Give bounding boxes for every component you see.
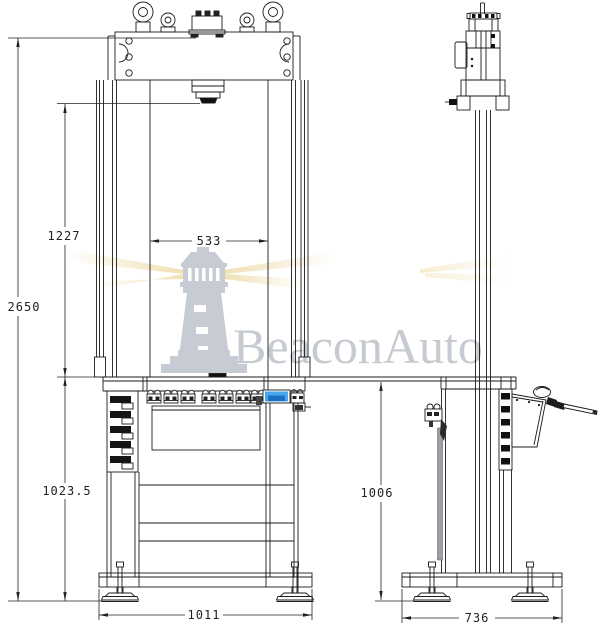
dimension-column-span: 533 bbox=[150, 234, 268, 248]
top-valve-block bbox=[189, 11, 225, 37]
leveling-foot bbox=[414, 562, 451, 602]
crosshead-beam bbox=[108, 32, 300, 80]
dimension-side-table-height: 1006 bbox=[361, 382, 414, 601]
dimension-base-width: 1011 bbox=[99, 589, 312, 622]
light-beams bbox=[66, 249, 508, 289]
pressure-display bbox=[256, 390, 311, 411]
drawing-canvas: BeaconAuto bbox=[0, 0, 606, 631]
dimension-clearance-height: 1227 bbox=[48, 104, 200, 378]
dimension-label: 1227 bbox=[48, 229, 81, 243]
front-base bbox=[99, 562, 314, 602]
dimension-label: 533 bbox=[197, 234, 222, 248]
dimension-label: 1023.5 bbox=[42, 484, 91, 498]
dimension-label: 2650 bbox=[8, 300, 41, 314]
dimension-label: 1006 bbox=[361, 486, 394, 500]
watermark: BeaconAuto bbox=[66, 247, 508, 374]
door-panel bbox=[152, 406, 260, 450]
hydraulic-ram bbox=[192, 80, 224, 103]
side-table-top bbox=[441, 377, 516, 389]
side-view bbox=[305, 3, 597, 602]
engineering-drawing: BeaconAuto bbox=[0, 0, 606, 631]
dimension-overall-height: 2650 bbox=[8, 38, 196, 601]
dimension-label: 736 bbox=[465, 611, 490, 625]
watermark-brand-text: BeaconAuto bbox=[233, 318, 483, 374]
side-bench bbox=[425, 389, 512, 573]
slot-cabinet bbox=[107, 391, 138, 472]
control-panel bbox=[512, 394, 546, 447]
side-base bbox=[402, 562, 562, 602]
dimension-table-height: 1023.5 bbox=[42, 377, 91, 601]
dimension-base-depth: 736 bbox=[402, 589, 562, 625]
valve-row bbox=[147, 390, 265, 403]
projection-lines bbox=[305, 377, 441, 381]
side-cylinder-assembly bbox=[445, 3, 509, 110]
dimension-label: 1011 bbox=[188, 608, 221, 622]
table-top bbox=[103, 374, 305, 392]
leveling-foot bbox=[277, 562, 314, 602]
eye-bolts bbox=[133, 2, 283, 32]
leveling-foot bbox=[512, 562, 549, 602]
